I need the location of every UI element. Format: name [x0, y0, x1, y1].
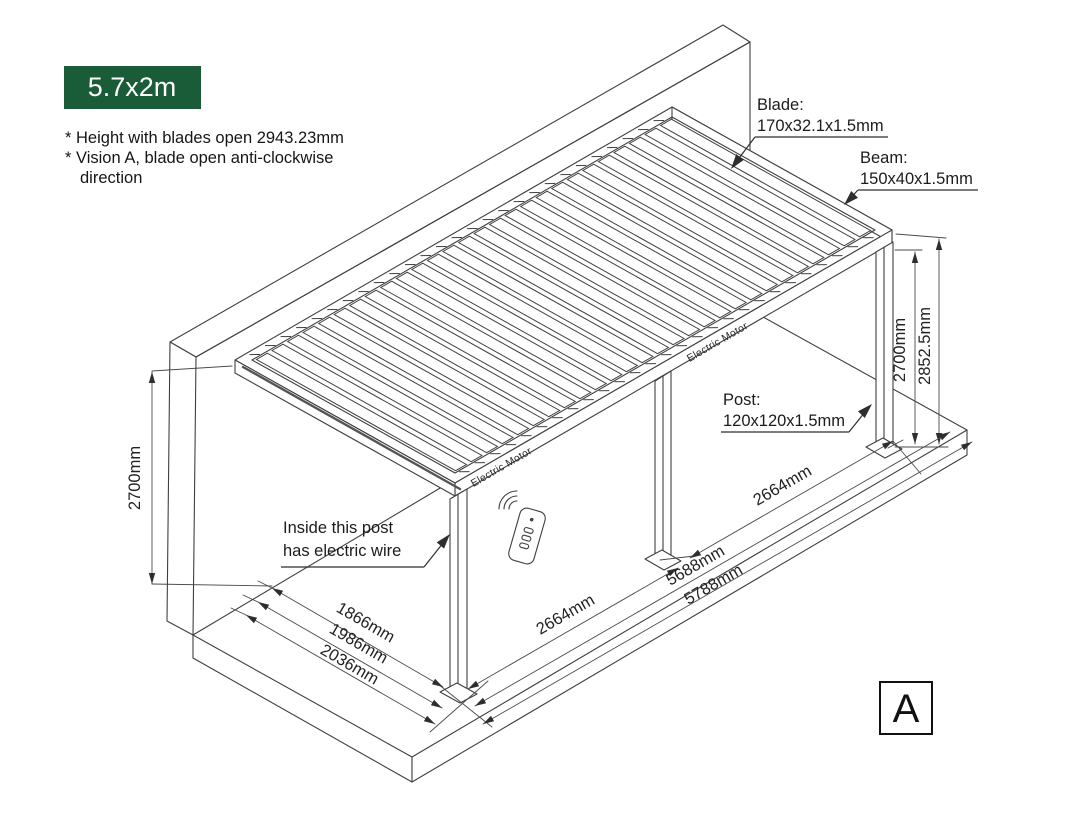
notes: * Height with blades open 2943.23mm * Vi… — [65, 129, 344, 187]
pergola-dimension-diagram: Electric Motor Electric Motor 2700mm — [0, 0, 1080, 831]
wire-callout-line2: has electric wire — [283, 542, 401, 560]
blade-callout-title: Blade: — [757, 96, 804, 114]
size-badge-label: 5.7x2m — [88, 72, 177, 102]
size-badge: 5.7x2m — [64, 66, 201, 109]
view-label-box: A — [880, 682, 932, 734]
callout-beam: Beam: 150x40x1.5mm — [841, 149, 978, 208]
note-line-1: * Height with blades open 2943.23mm — [65, 129, 344, 147]
dim-left-height-label: 2700mm — [126, 446, 144, 510]
note-line-3: direction — [80, 169, 142, 187]
post-callout-title: Post: — [723, 391, 761, 409]
beam-callout-size: 150x40x1.5mm — [860, 170, 973, 188]
beam-callout-title: Beam: — [860, 149, 908, 167]
note-line-2: * Vision A, blade open anti-clockwise — [65, 149, 333, 167]
dim-total-height-label: 2852.5mm — [916, 307, 934, 385]
diagram-canvas: Electric Motor Electric Motor 2700mm — [0, 0, 1080, 831]
wire-callout-line1: Inside this post — [283, 519, 393, 537]
dim-post-height-label: 2700mm — [891, 318, 909, 382]
view-label: A — [893, 687, 920, 731]
blade-callout-size: 170x32.1x1.5mm — [757, 117, 884, 135]
post-callout-size: 120x120x1.5mm — [723, 412, 845, 430]
